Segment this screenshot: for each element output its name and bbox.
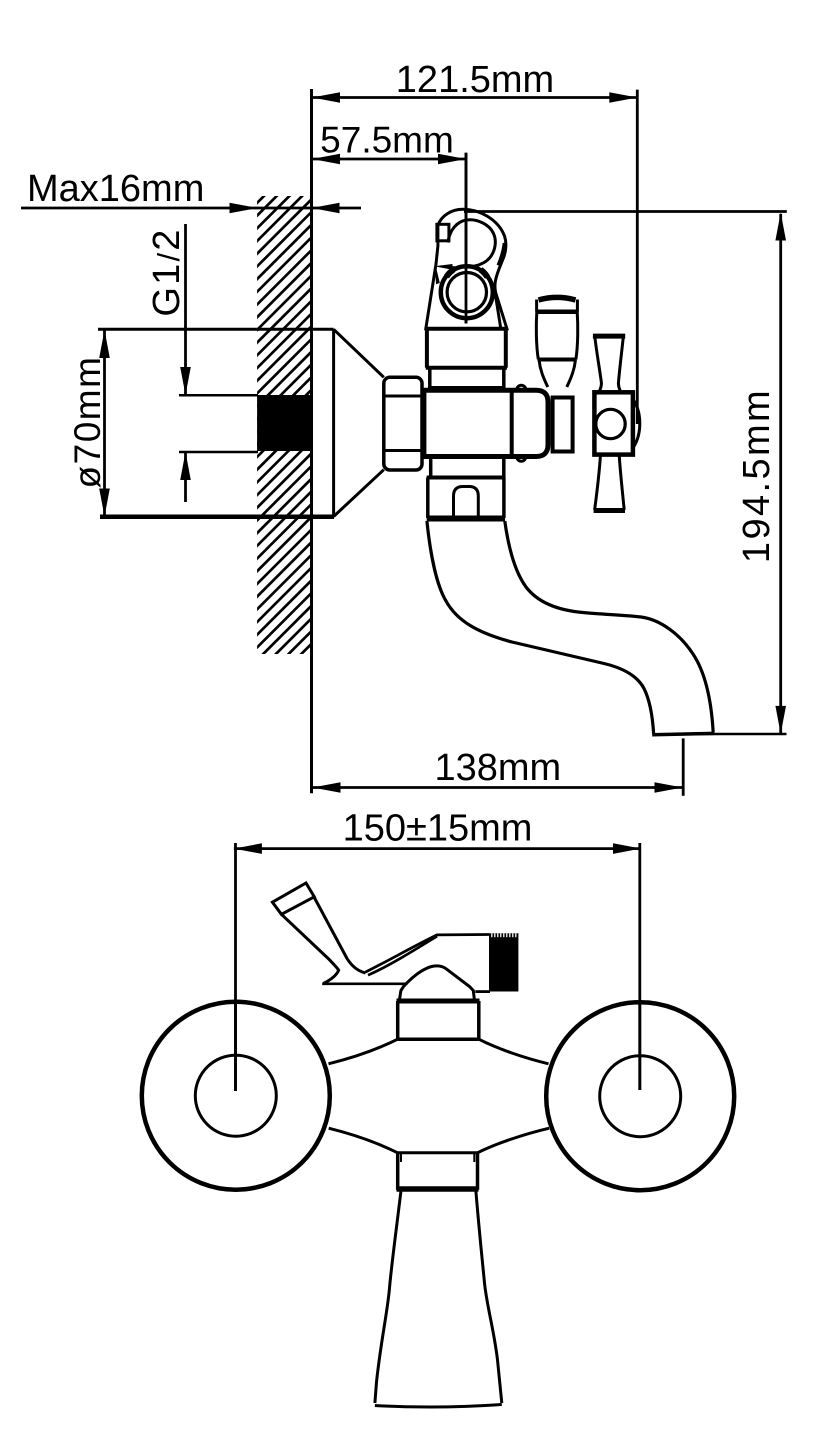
svg-text:138mm: 138mm: [434, 747, 561, 789]
svg-text:57.5mm: 57.5mm: [320, 120, 454, 161]
svg-text:ø70mm: ø70mm: [67, 356, 108, 489]
svg-text:Max16mm: Max16mm: [27, 168, 204, 210]
svg-text:150±15mm: 150±15mm: [343, 808, 533, 850]
svg-text:194.5mm: 194.5mm: [736, 388, 778, 563]
svg-text:G1/2: G1/2: [146, 227, 188, 316]
svg-text:121.5mm: 121.5mm: [396, 59, 554, 101]
